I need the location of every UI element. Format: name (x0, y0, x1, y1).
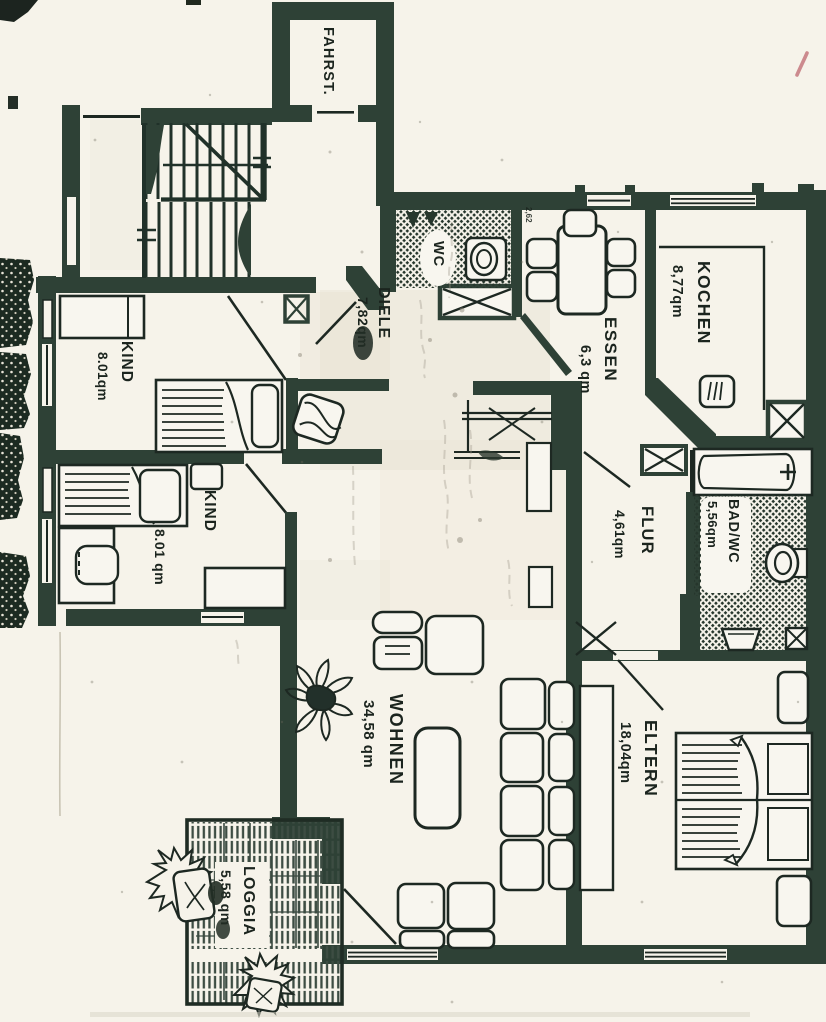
svg-text:KIND: KIND (201, 490, 218, 532)
svg-text:18,04qm: 18,04qm (617, 722, 633, 784)
svg-text:2,62: 2,62 (524, 207, 533, 223)
svg-text:ELTERN: ELTERN (641, 720, 661, 797)
svg-text:8.01qm: 8.01qm (95, 352, 110, 401)
svg-text:KOCHEN: KOCHEN (694, 261, 714, 345)
svg-text:8,77qm: 8,77qm (669, 265, 685, 318)
svg-text:FLUR: FLUR (638, 506, 656, 555)
svg-text:5,56qm: 5,56qm (705, 501, 720, 548)
svg-text:WC: WC (430, 241, 446, 267)
svg-text:LOGGIA: LOGGIA (240, 866, 257, 936)
svg-text:4,61qm: 4,61qm (612, 510, 627, 559)
svg-text:34,58 qm: 34,58 qm (360, 700, 377, 768)
svg-text:6,3 qm: 6,3 qm (577, 345, 593, 394)
svg-text:ESSEN: ESSEN (601, 317, 620, 382)
svg-text:BAD/WC: BAD/WC (725, 499, 741, 563)
svg-text:WOHNEN: WOHNEN (386, 694, 406, 786)
svg-text:DIELE: DIELE (375, 287, 392, 339)
svg-text:FAHRST.: FAHRST. (320, 27, 336, 96)
svg-text:KIND: KIND (118, 341, 135, 383)
svg-text:8.01 qm: 8.01 qm (152, 529, 168, 585)
